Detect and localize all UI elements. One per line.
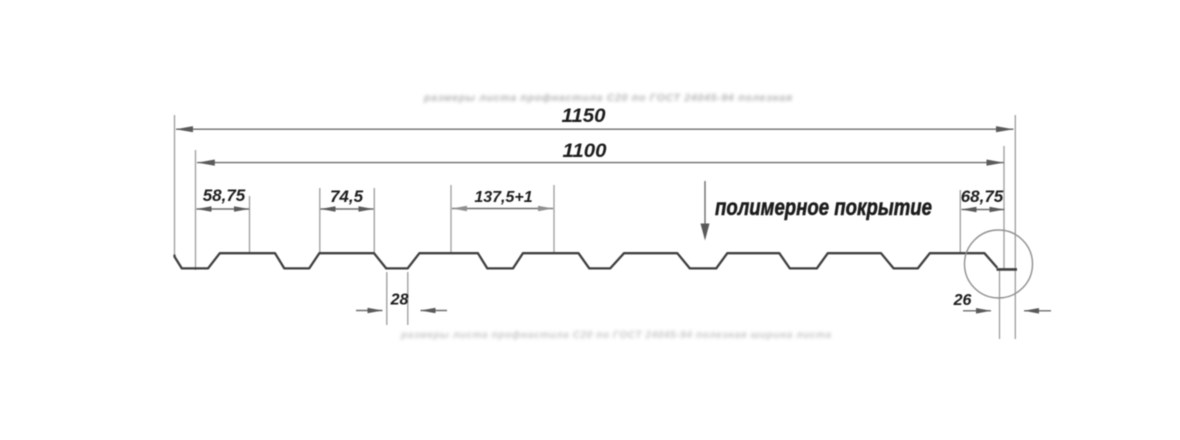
svg-text:137,5+1: 137,5+1 <box>474 189 532 206</box>
svg-text:58,75: 58,75 <box>203 186 246 205</box>
svg-text:размеры листа профнастила С20: размеры листа профнастила С20 по ГОСТ 24… <box>400 329 831 341</box>
svg-text:полимерное покрытие: полимерное покрытие <box>715 194 932 220</box>
svg-text:28: 28 <box>390 292 409 309</box>
svg-text:74,5: 74,5 <box>330 187 364 206</box>
svg-text:26: 26 <box>953 292 972 309</box>
svg-text:размеры листа профнастила С20: размеры листа профнастила С20 по ГОСТ 24… <box>423 92 792 104</box>
svg-text:68,75: 68,75 <box>961 187 1004 206</box>
svg-text:1100: 1100 <box>563 141 607 162</box>
svg-text:1150: 1150 <box>562 106 606 127</box>
